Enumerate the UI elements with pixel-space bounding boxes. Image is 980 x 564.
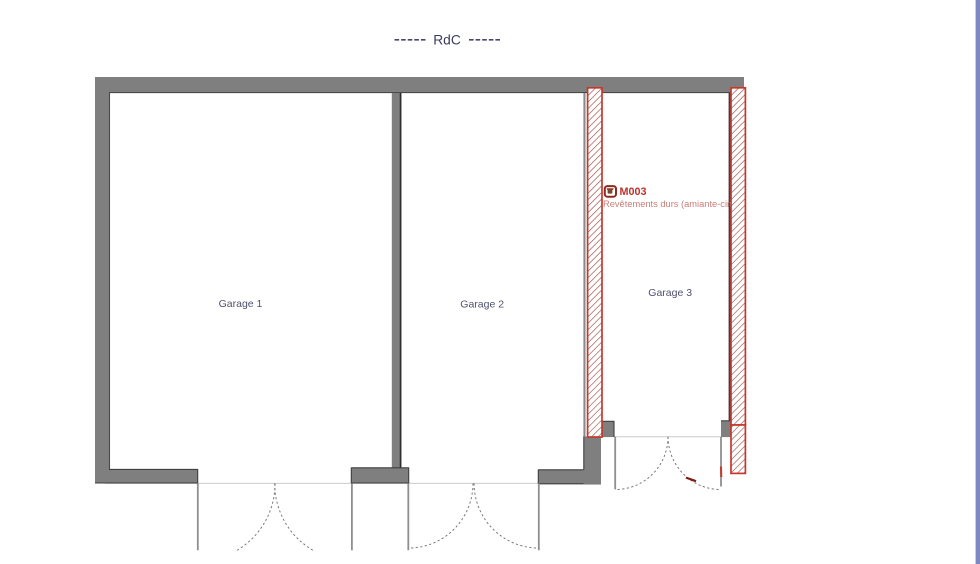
svg-text:Garage 2: Garage 2 <box>460 298 504 310</box>
svg-text:Garage 3: Garage 3 <box>648 287 692 299</box>
svg-text:M003: M003 <box>620 186 647 198</box>
svg-text:RdC: RdC <box>433 33 461 48</box>
svg-text:Revêtements durs (amiante-cime: Revêtements durs (amiante-cime <box>603 199 740 209</box>
svg-text:Garage 1: Garage 1 <box>219 298 263 310</box>
